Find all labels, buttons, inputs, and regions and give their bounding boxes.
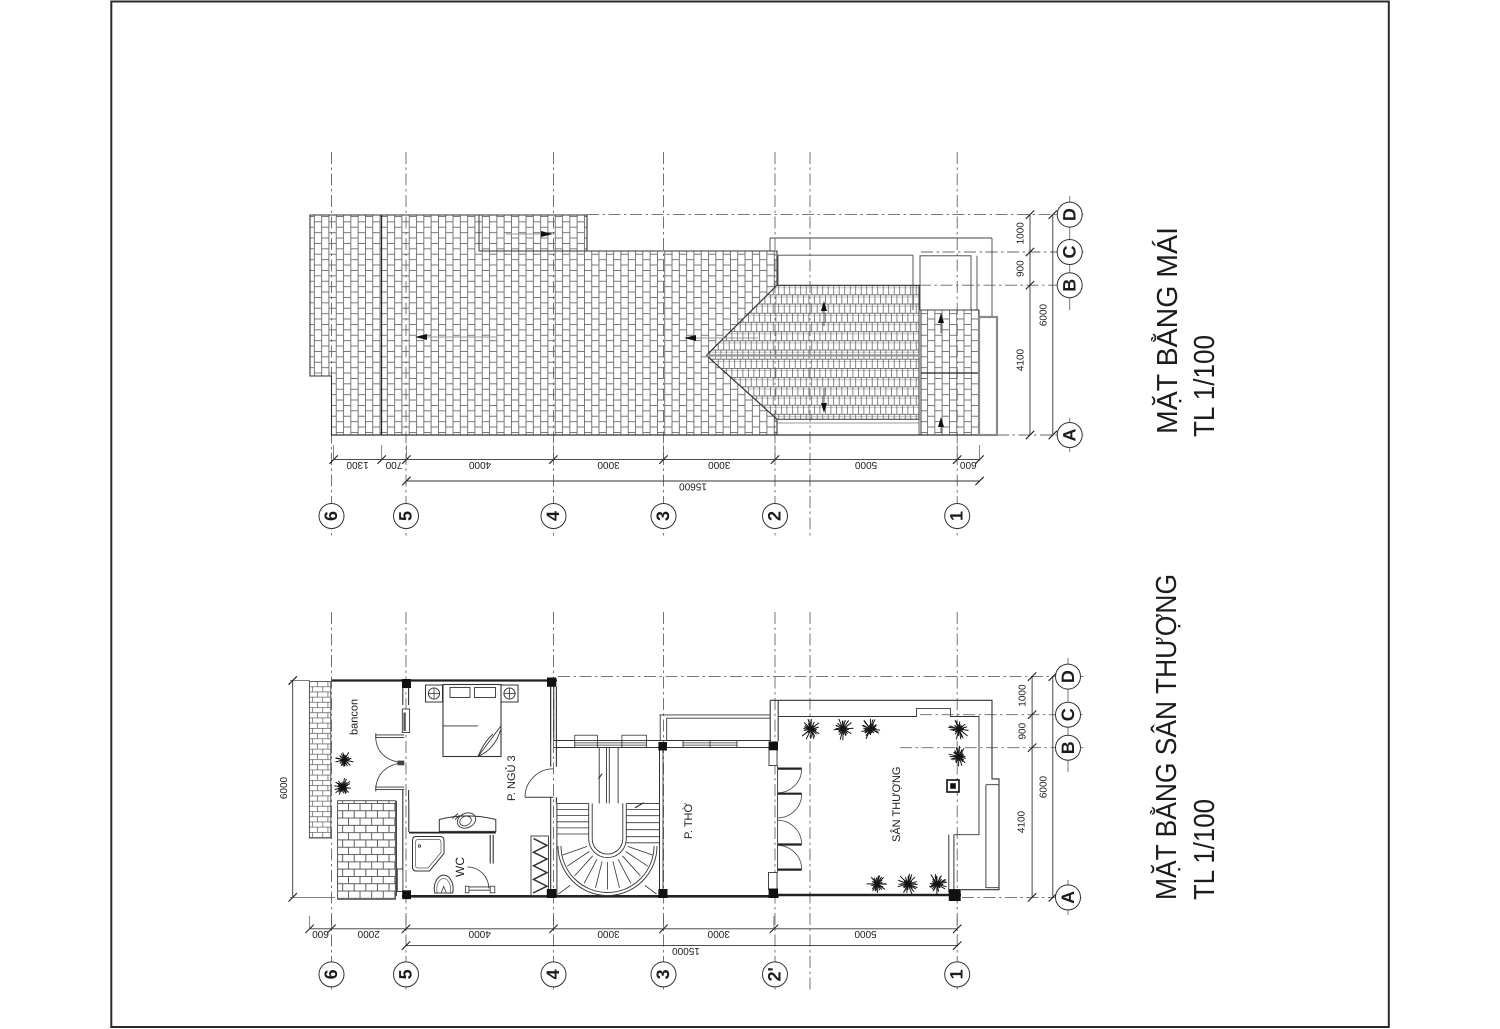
svg-text:15000: 15000 bbox=[672, 945, 700, 956]
svg-text:B: B bbox=[1058, 741, 1078, 754]
svg-text:6: 6 bbox=[321, 511, 341, 521]
svg-text:B: B bbox=[1060, 279, 1080, 292]
svg-text:C: C bbox=[1060, 246, 1080, 259]
svg-text:WC: WC bbox=[453, 857, 467, 877]
svg-text:D: D bbox=[1060, 208, 1080, 221]
svg-text:6000: 6000 bbox=[1039, 775, 1050, 798]
svg-text:3: 3 bbox=[653, 969, 673, 979]
svg-text:D: D bbox=[1058, 670, 1078, 683]
svg-text:2000: 2000 bbox=[357, 928, 380, 939]
svg-text:4100: 4100 bbox=[1016, 348, 1027, 371]
svg-text:5000: 5000 bbox=[854, 928, 877, 939]
svg-text:1: 1 bbox=[947, 511, 967, 521]
svg-text:600: 600 bbox=[960, 459, 977, 470]
svg-text:4100: 4100 bbox=[1017, 810, 1028, 833]
svg-text:P. THỜ: P. THỜ bbox=[682, 803, 695, 839]
svg-text:5: 5 bbox=[396, 511, 416, 521]
svg-text:6: 6 bbox=[321, 969, 341, 979]
svg-text:5: 5 bbox=[396, 969, 416, 979]
svg-text:3000: 3000 bbox=[708, 459, 731, 470]
svg-text:900: 900 bbox=[1018, 722, 1029, 739]
svg-text:1300: 1300 bbox=[346, 459, 369, 470]
svg-text:TL 1/100: TL 1/100 bbox=[1189, 335, 1221, 437]
svg-text:4000: 4000 bbox=[468, 459, 491, 470]
svg-text:SÂN THƯỢNG: SÂN THƯỢNG bbox=[890, 767, 903, 842]
svg-text:15600: 15600 bbox=[679, 481, 707, 492]
svg-text:700: 700 bbox=[385, 459, 402, 470]
svg-text:4: 4 bbox=[543, 511, 563, 521]
svg-text:900: 900 bbox=[1016, 260, 1027, 277]
svg-text:1000: 1000 bbox=[1016, 222, 1027, 245]
svg-text:2: 2 bbox=[765, 511, 785, 521]
svg-text:bancon: bancon bbox=[349, 699, 361, 735]
svg-text:TL 1/100: TL 1/100 bbox=[1189, 799, 1221, 900]
svg-text:P. NGỦ 3: P. NGỦ 3 bbox=[505, 755, 518, 801]
svg-text:2': 2' bbox=[765, 967, 785, 981]
svg-text:600: 600 bbox=[312, 928, 329, 939]
svg-text:A: A bbox=[1058, 891, 1078, 904]
svg-text:3000: 3000 bbox=[707, 928, 730, 939]
svg-text:4: 4 bbox=[543, 969, 563, 979]
svg-text:4000: 4000 bbox=[468, 928, 491, 939]
svg-text:5000: 5000 bbox=[854, 459, 877, 470]
svg-text:C: C bbox=[1058, 708, 1078, 721]
svg-text:1000: 1000 bbox=[1018, 684, 1029, 707]
svg-text:MẶT BẰNG MÁI: MẶT BẰNG MÁI bbox=[1151, 227, 1184, 434]
svg-text:3000: 3000 bbox=[597, 928, 620, 939]
svg-text:6000: 6000 bbox=[279, 776, 290, 799]
svg-text:A: A bbox=[1060, 429, 1080, 442]
svg-text:6000: 6000 bbox=[1039, 303, 1050, 326]
svg-text:3000: 3000 bbox=[597, 459, 620, 470]
svg-text:MẶT BẰNG SÂN THƯỢNG: MẶT BẰNG SÂN THƯỢNG bbox=[1150, 574, 1183, 900]
svg-text:1: 1 bbox=[947, 969, 967, 979]
svg-text:3: 3 bbox=[653, 511, 673, 521]
